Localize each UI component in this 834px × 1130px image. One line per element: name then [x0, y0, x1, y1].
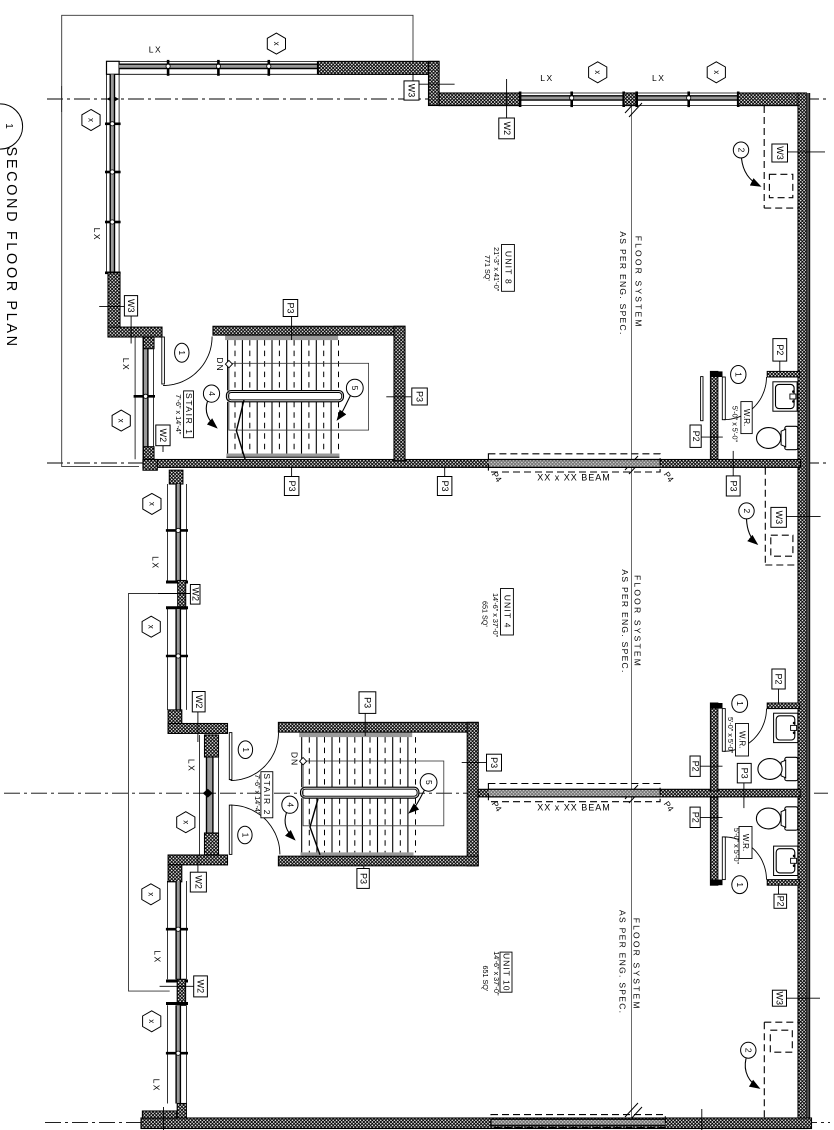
svg-text:W3: W3 [775, 991, 785, 1005]
svg-text:P2: P2 [690, 812, 700, 823]
svg-text:LX: LX [152, 950, 162, 963]
svg-text:W.R.: W.R. [738, 731, 747, 748]
svg-text:x: x [181, 820, 190, 824]
svg-text:W2: W2 [194, 875, 204, 889]
svg-text:2: 2 [744, 1048, 754, 1053]
svg-text:1: 1 [241, 747, 251, 752]
svg-text:P4: P4 [662, 799, 676, 813]
svg-text:LX: LX [186, 759, 196, 772]
svg-text:P3: P3 [358, 873, 368, 884]
svg-text:x: x [593, 70, 602, 74]
svg-text:5'-0" x 5'-0": 5'-0" x 5'-0" [731, 406, 740, 443]
svg-text:P3: P3 [363, 697, 373, 708]
svg-text:FLOOR SYSTEM: FLOOR SYSTEM [632, 575, 642, 668]
svg-text:P3: P3 [287, 480, 297, 491]
svg-text:LX: LX [150, 556, 160, 569]
svg-text:LX: LX [540, 73, 553, 83]
svg-text:x: x [147, 625, 156, 629]
svg-text:UNIT 4: UNIT 4 [502, 595, 512, 629]
svg-text:4: 4 [207, 391, 217, 396]
svg-text:x: x [146, 892, 155, 896]
svg-text:FLOOR SYSTEM: FLOOR SYSTEM [632, 918, 642, 1011]
svg-text:2: 2 [736, 148, 746, 153]
svg-text:P4: P4 [662, 470, 676, 484]
svg-text:771 SQ': 771 SQ' [483, 255, 492, 281]
svg-text:LX: LX [149, 45, 162, 55]
svg-text:x: x [147, 502, 156, 506]
svg-text:DN: DN [290, 752, 300, 766]
svg-text:W3: W3 [775, 146, 785, 160]
svg-text:7'-6" x 14'-4": 7'-6" x 14'-4" [174, 394, 183, 435]
svg-text:x: x [117, 419, 126, 423]
svg-text:1: 1 [240, 833, 250, 838]
svg-text:1: 1 [3, 123, 14, 129]
svg-text:LX: LX [652, 73, 665, 83]
svg-text:P3: P3 [415, 391, 425, 402]
svg-text:x: x [87, 118, 96, 122]
svg-text:651 SQ': 651 SQ' [481, 601, 490, 627]
svg-text:W.R.: W.R. [741, 834, 750, 851]
svg-text:P2: P2 [690, 761, 700, 772]
svg-text:AS PER ENG. SPEC.: AS PER ENG. SPEC. [618, 910, 628, 1014]
svg-text:P2: P2 [775, 344, 785, 355]
svg-text:P2: P2 [774, 673, 784, 684]
svg-text:14'-6" x 37'-0": 14'-6" x 37'-0" [491, 593, 500, 638]
svg-text:5'-0" x 5'-0": 5'-0" x 5'-0" [726, 717, 735, 754]
svg-text:P3: P3 [740, 768, 750, 779]
svg-text:FLOOR SYSTEM: FLOOR SYSTEM [633, 236, 643, 329]
svg-text:21'-3" x 41'-0": 21'-3" x 41'-0" [492, 247, 501, 292]
svg-text:LX: LX [121, 358, 131, 371]
svg-text:P2: P2 [691, 431, 701, 442]
svg-text:UNIT 8: UNIT 8 [503, 251, 513, 285]
svg-text:x: x [712, 70, 721, 74]
svg-text:W3: W3 [126, 299, 136, 313]
svg-text:W.R.: W.R. [742, 409, 751, 426]
svg-text:W2: W2 [502, 122, 512, 136]
svg-text:1: 1 [177, 350, 187, 355]
svg-text:UNIT 10: UNIT 10 [501, 953, 511, 992]
svg-text:W2: W2 [194, 695, 204, 709]
svg-text:W2: W2 [190, 588, 200, 602]
svg-text:7'-6" x 14'-4": 7'-6" x 14'-4" [253, 774, 262, 815]
svg-text:AS PER ENG. SPEC.: AS PER ENG. SPEC. [618, 231, 628, 335]
svg-text:LX: LX [152, 1079, 162, 1092]
svg-text:P3: P3 [286, 302, 296, 313]
svg-text:1: 1 [734, 372, 744, 377]
svg-text:XX x XX BEAM: XX x XX BEAM [537, 803, 611, 813]
svg-text:14'-6" x 37'-0": 14'-6" x 37'-0" [492, 951, 501, 996]
svg-text:2: 2 [742, 509, 752, 514]
svg-text:SECOND FLOOR PLAN: SECOND FLOOR PLAN [3, 147, 19, 349]
svg-text:W2: W2 [196, 980, 206, 994]
svg-text:P3: P3 [728, 480, 738, 491]
svg-text:651 SQ': 651 SQ' [481, 966, 490, 992]
svg-text:W2: W2 [158, 429, 168, 443]
svg-text:4: 4 [285, 802, 295, 807]
svg-text:x: x [272, 42, 281, 46]
svg-text:1: 1 [735, 882, 745, 887]
svg-text:W3: W3 [407, 84, 417, 98]
svg-text:STAIR 1: STAIR 1 [184, 393, 194, 436]
svg-text:LX: LX [92, 228, 102, 241]
svg-text:1: 1 [735, 701, 745, 706]
svg-text:P3: P3 [440, 480, 450, 491]
svg-text:DN: DN [215, 357, 225, 371]
svg-text:P3: P3 [489, 757, 499, 768]
svg-text:P2: P2 [776, 896, 786, 907]
svg-text:5: 5 [424, 780, 434, 785]
svg-text:XX x XX BEAM: XX x XX BEAM [537, 473, 611, 483]
svg-text:AS PER ENG. SPEC.: AS PER ENG. SPEC. [620, 569, 630, 673]
svg-text:x: x [147, 1019, 156, 1023]
svg-text:STAIR 2: STAIR 2 [262, 773, 272, 816]
svg-text:5: 5 [350, 386, 360, 391]
svg-text:W3: W3 [774, 511, 784, 525]
